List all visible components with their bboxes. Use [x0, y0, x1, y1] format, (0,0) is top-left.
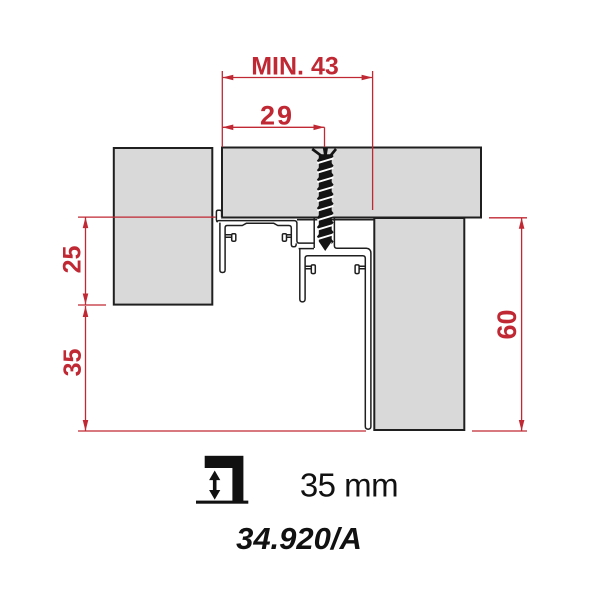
- svg-text:34.920/A: 34.920/A: [236, 521, 362, 556]
- svg-text:25: 25: [59, 246, 87, 274]
- svg-text:35: 35: [59, 349, 87, 377]
- svg-text:35 mm: 35 mm: [300, 467, 398, 504]
- svg-text:MIN. 43: MIN. 43: [251, 53, 339, 81]
- svg-text:29: 29: [260, 101, 294, 131]
- svg-text:60: 60: [492, 309, 522, 339]
